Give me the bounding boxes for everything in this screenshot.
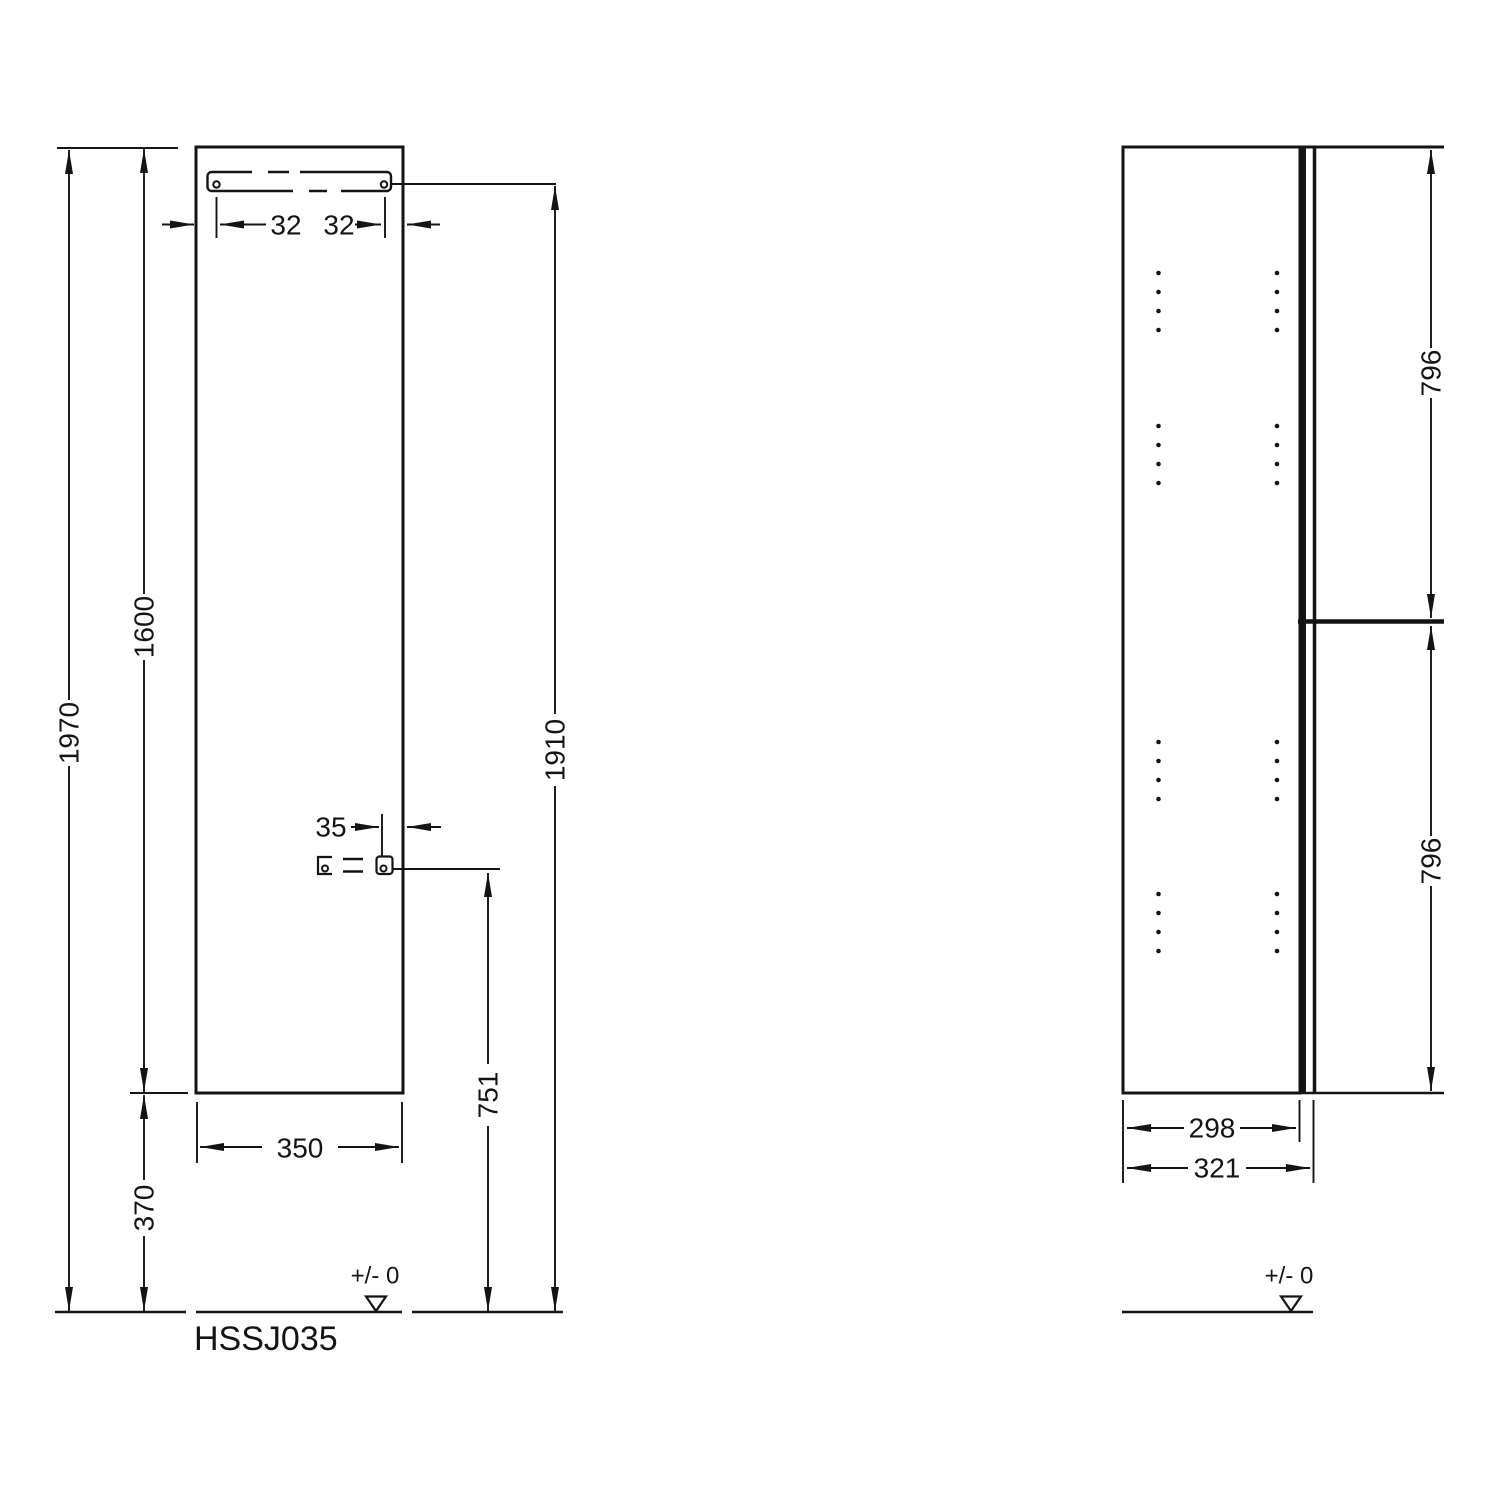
dim-label-32-right: 32 — [323, 210, 354, 241]
dim-label-370: 370 — [129, 1185, 160, 1232]
rail-hole-left — [213, 181, 219, 187]
side-body-outline — [1123, 147, 1300, 1093]
technical-drawing: 32 32 1970 1600 370 — [0, 0, 1500, 1500]
product-code: HSSJ035 — [194, 1320, 338, 1358]
dim-label-35: 35 — [315, 812, 346, 843]
datum-label: +/- 0 — [351, 1263, 400, 1290]
datum-triangle-icon — [1281, 1297, 1301, 1312]
dim-rail-holes: 32 32 — [162, 197, 440, 241]
dim-overall-height: 1970 — [54, 148, 179, 1311]
mounting-rail — [208, 169, 392, 195]
hinge-hole-right — [381, 866, 387, 872]
dim-lower-door: 796 — [1416, 626, 1447, 1091]
datum-side: +/- 0 — [1265, 1263, 1314, 1312]
front-view: 32 32 1970 1600 370 — [54, 147, 571, 1358]
dim-hinge-height: 751 — [473, 873, 504, 1311]
dim-bottom-clearance: 370 — [129, 1095, 160, 1311]
technical-drawing-page: 32 32 1970 1600 370 — [0, 0, 1500, 1500]
dim-hinge-inset: 35 — [315, 812, 441, 843]
dim-depths: 298 321 — [1123, 1100, 1314, 1184]
dim-label-796-lower: 796 — [1416, 838, 1447, 885]
rail-hole-right — [381, 181, 387, 187]
dim-label-796-upper: 796 — [1416, 350, 1447, 397]
dim-label-1600: 1600 — [129, 596, 160, 658]
side-view: 796 796 298 321 +/- 0 — [1122, 147, 1447, 1312]
datum-label: +/- 0 — [1265, 1263, 1314, 1290]
dim-label-1910: 1910 — [540, 719, 571, 781]
dim-panel-height: 1600 — [129, 149, 189, 1093]
dim-label-321: 321 — [1194, 1153, 1241, 1184]
dim-upper-door: 796 — [1416, 150, 1447, 618]
dim-label-350: 350 — [277, 1133, 324, 1164]
datum-triangle-icon — [366, 1297, 386, 1312]
shelf-pin-holes — [1156, 271, 1279, 954]
hole-column-left — [1156, 271, 1161, 954]
hole-column-right — [1275, 271, 1280, 954]
dim-label-298: 298 — [1189, 1113, 1236, 1144]
dim-label-1970: 1970 — [54, 702, 85, 764]
dim-rail-height: 1910 — [540, 186, 571, 1311]
dim-label-32-left: 32 — [270, 210, 301, 241]
hinge-hole-left — [322, 866, 328, 872]
dim-panel-width: 350 — [197, 1102, 402, 1164]
dim-label-751: 751 — [473, 1072, 504, 1119]
datum-front: +/- 0 — [351, 1263, 400, 1312]
panel-outline — [196, 147, 403, 1093]
